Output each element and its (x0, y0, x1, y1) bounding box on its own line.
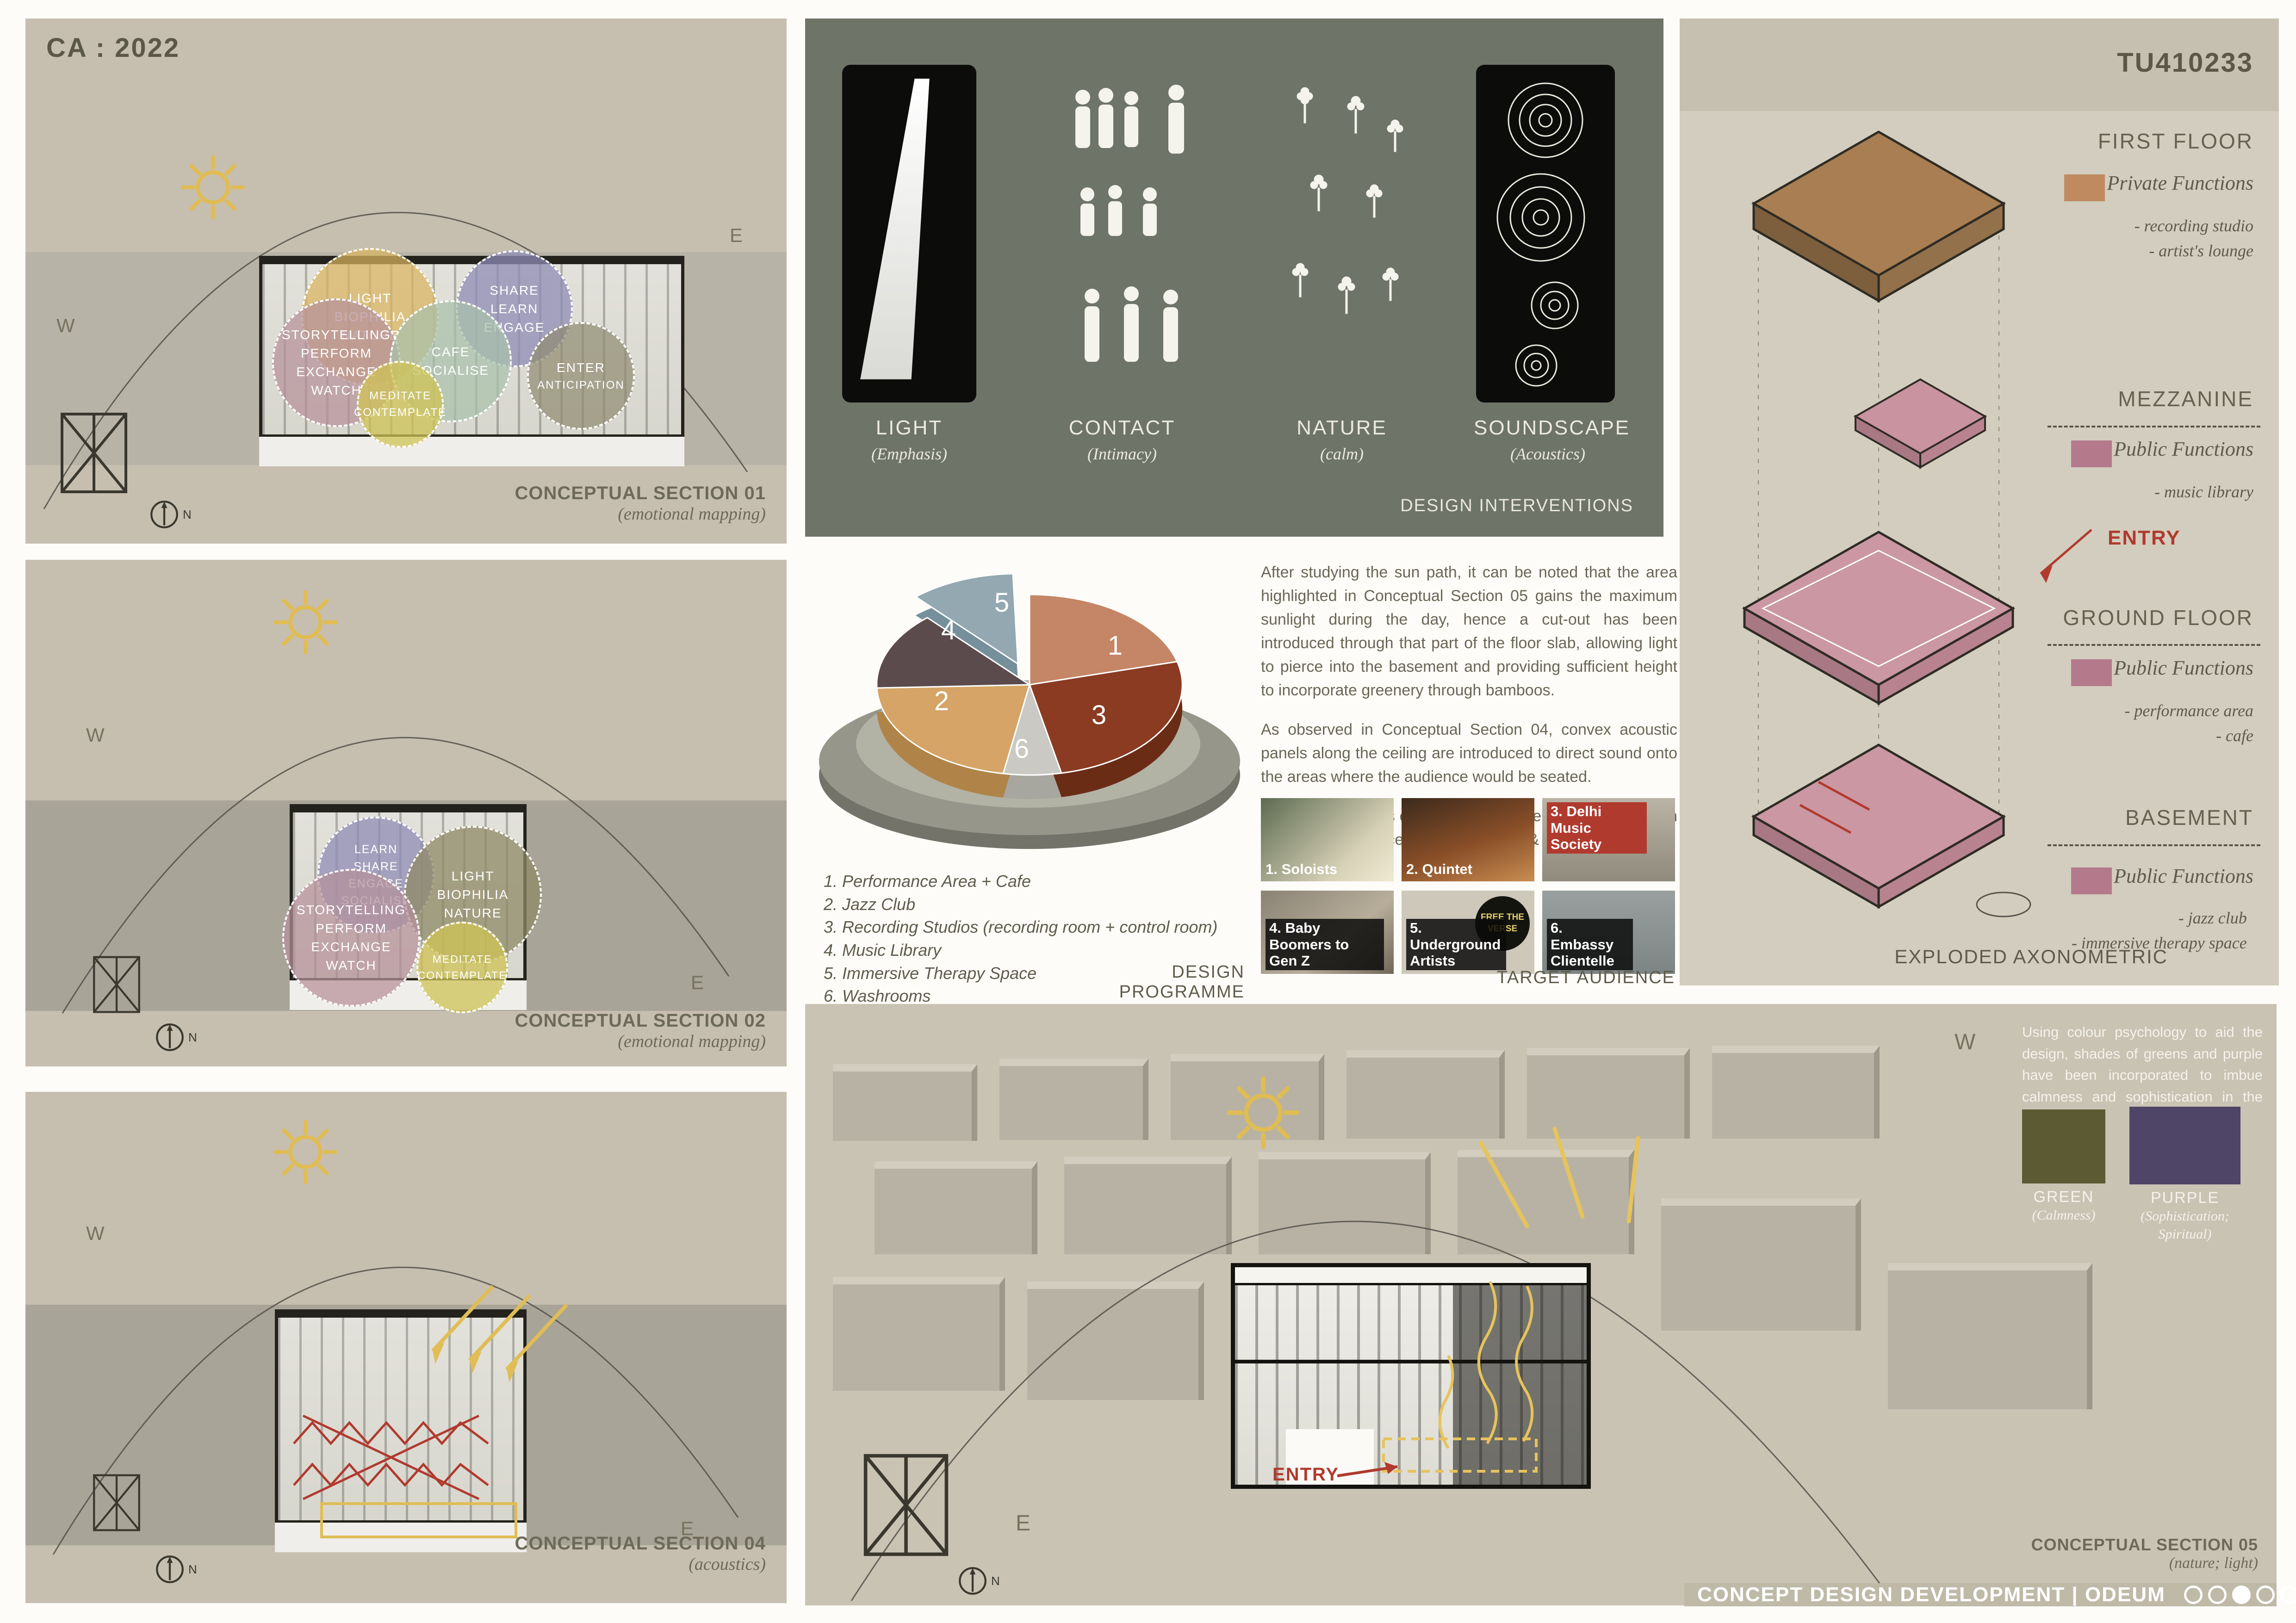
west-label: W (86, 724, 105, 746)
audience-tile-quintet: 2. Quintet (1402, 798, 1534, 881)
floor-legend: Public Functions - performance area - ca… (2071, 656, 2253, 748)
bubble-label: EXCHANGE (296, 365, 376, 379)
caption-title: CONCEPTUAL SECTION 04 (515, 1533, 766, 1554)
north-compass: N (149, 500, 192, 529)
city-block (1347, 1050, 1505, 1139)
key-plan-sketch (862, 1450, 950, 1561)
city-block (1661, 1198, 1861, 1331)
north-compass: N (958, 1566, 1000, 1596)
caption-title: CONCEPTUAL SECTION 01 (515, 483, 766, 504)
north-compass: N (155, 1022, 197, 1052)
bubble-label: LEARN (490, 302, 538, 316)
contact-illustration (1055, 79, 1208, 403)
intervention-sub: (Acoustics) (1474, 444, 1622, 464)
floor-function: Private Functions (2107, 172, 2254, 194)
audience-tile-embassy-clientelle: 6. Embassy Clientelle (1542, 891, 1675, 974)
audience-label: 2. Quintet (1406, 861, 1472, 878)
green-swatch-color (2022, 1109, 2105, 1183)
audience-caption: TARGET AUDIENCE (1490, 968, 1675, 988)
section-caption: CONCEPTUAL SECTION 02 (emotional mapping… (515, 1010, 766, 1052)
north-label: N (991, 1574, 1000, 1588)
programme-item: 2. Jazz Club (824, 893, 1263, 916)
swatch-name: PURPLE (2129, 1189, 2240, 1207)
page-dot (2208, 1586, 2227, 1604)
panel-exploded-axonometric: TU410233 (1680, 19, 2279, 985)
key-plan-sketch (92, 948, 141, 1022)
audience-label: 4. Baby Boomers to Gen Z (1266, 919, 1384, 970)
programme-item: 1. Performance Area + Cafe (824, 870, 1263, 893)
intervention-title: LIGHT (876, 416, 943, 439)
axonometric-caption: EXPLODED AXONOMETRIC (1894, 946, 2168, 968)
north-label: N (188, 1030, 197, 1045)
divider (2048, 844, 2260, 846)
sun-icon (271, 1117, 340, 1187)
floor-function: Public Functions (2114, 657, 2253, 679)
sun-icon (178, 153, 248, 222)
section-caption: CONCEPTUAL SECTION 05 (nature; light) (2031, 1535, 2258, 1572)
entry-label: ENTRY (2108, 527, 2181, 550)
pie-slice-number: 3 (1092, 700, 1106, 730)
floor-item: - jazz club (2071, 905, 2247, 930)
floor-legend: Public Functions - jazz club - immersive… (2071, 864, 2253, 955)
audience-label: 6. Embassy Clientelle (1547, 919, 1633, 970)
floor-name: GROUND FLOOR (2063, 605, 2253, 630)
divider (2048, 426, 2260, 427)
city-block (1027, 1282, 1204, 1400)
sun-icon (1224, 1073, 1303, 1152)
intervention-label: NATURE (calm) (1268, 416, 1416, 464)
intervention-title: CONTACT (1069, 416, 1175, 439)
floor-item: - recording studio (2064, 213, 2253, 238)
footer-title: CONCEPT DESIGN DEVELOPMENT | ODEUM (1697, 1583, 2166, 1606)
pie-slice-number: 5 (994, 588, 1009, 618)
floor-item: - performance area (2071, 698, 2253, 723)
bubble-label: CONTEMPLATE (354, 406, 447, 419)
key-plan-sketch (92, 1466, 141, 1540)
floor-name: MEZZANINE (2118, 386, 2253, 411)
floor-function: Public Functions (2114, 438, 2253, 460)
bubble-label: ENTER (557, 360, 605, 375)
audience-tile-delhi-music-society: 3. Delhi Music Society (1542, 798, 1675, 881)
entry-arrow (1328, 1448, 1430, 1490)
programme-item: 3. Recording Studios (recording room + c… (824, 916, 1263, 939)
section-caption: CONCEPTUAL SECTION 01 (emotional mapping… (515, 483, 766, 524)
north-compass: N (155, 1555, 197, 1584)
caption-sub: (acoustics) (515, 1554, 766, 1574)
pie-slice-number: 2 (934, 686, 949, 716)
legend-swatch (2071, 440, 2112, 467)
bubble-label: LIGHT (452, 869, 494, 884)
caption-title: CONCEPTUAL SECTION 02 (515, 1010, 766, 1031)
page-indicator (2184, 1586, 2296, 1604)
swatch-sub: (Sophistication; Spiritual) (2129, 1207, 2240, 1243)
city-block (1259, 1152, 1431, 1254)
north-label: N (183, 508, 192, 522)
bubble-label: BIOPHILIA (437, 887, 509, 902)
city-block (875, 1161, 1037, 1254)
floor-legend: Public Functions - music library (2071, 437, 2253, 504)
floor-name: BASEMENT (2125, 805, 2253, 830)
bubble-label: STORYTELLING (282, 328, 391, 342)
board-code: CA : 2022 (46, 32, 180, 63)
board-footer: CONCEPT DESIGN DEVELOPMENT | ODEUM (1684, 1583, 2277, 1606)
west-label: W (56, 315, 76, 337)
bubble-label: WATCH (311, 383, 362, 398)
audience-tile-underground-artists: FREE THE VERSE 5. Underground Artists (1402, 891, 1534, 974)
bubble-label: CONTEMPLATE (418, 969, 507, 982)
programme-item: 4. Music Library (824, 939, 1263, 962)
page-dot-active (2232, 1586, 2251, 1604)
intervention-sub: (calm) (1268, 444, 1416, 464)
bubble-label: ANTICIPATION (537, 379, 624, 392)
intervention-sub: (Intimacy) (1048, 444, 1196, 464)
city-block (1888, 1263, 2092, 1409)
caption-sub: (emotional mapping) (515, 1031, 766, 1052)
audience-tile-baby-boomers: 4. Baby Boomers to Gen Z (1261, 891, 1394, 974)
floor-function: Public Functions (2114, 865, 2253, 887)
section-caption: CONCEPTUAL SECTION 04 (acoustics) (515, 1533, 766, 1574)
floor-item: - cafe (2071, 723, 2253, 748)
bubble-label: EXCHANGE (311, 940, 391, 954)
intervention-label: LIGHT (Emphasis) (835, 416, 983, 464)
city-block (1458, 1150, 1634, 1254)
east-label: E (1016, 1511, 1031, 1536)
programme-caption: DESIGN PROGRAMME (1060, 962, 1245, 1002)
panel-conceptual-section-05: ENTRY W E Using colour psychology to aid… (805, 1004, 2277, 1605)
north-label: N (188, 1562, 197, 1577)
interventions-caption: DESIGN INTERVENTIONS (1400, 496, 1633, 516)
panel-design-interventions: LIGHT (Emphasis) CONTACT (Intimacy) NATU… (805, 19, 1663, 537)
light-illustration (842, 65, 976, 403)
audience-label: 1. Soloists (1266, 861, 1337, 878)
board-code: TU410233 (2117, 47, 2253, 78)
building-section-drawing (275, 1309, 527, 1552)
caption-title: CONCEPTUAL SECTION 05 (2031, 1535, 2258, 1555)
design-programme-pie-chart: 1 3 6 2 4 5 (810, 555, 1249, 856)
bubble-label: NATURE (444, 906, 502, 921)
presentation-board: CA : 2022 W E LIGHT BIOPHILIA NATURE SHA… (0, 0, 2296, 1623)
floor-legend: Private Functions - recording studio - a… (2064, 171, 2253, 263)
emotion-bubble-enter: ENTER ANTICIPATION (527, 322, 635, 430)
sun-icon (271, 588, 340, 657)
emotion-bubble-perform: STORYTELLING PERFORM EXCHANGE WATCH (282, 869, 420, 1007)
intervention-label: SOUNDSCAPE (Acoustics) (1474, 416, 1622, 464)
page-dot (2280, 1586, 2296, 1604)
pie-slice-number: 4 (941, 615, 956, 645)
bubble-label: LEARN (354, 843, 397, 856)
west-label: W (1955, 1029, 1976, 1055)
swatch-sub: (Calmness) (2022, 1206, 2105, 1224)
intervention-label: CONTACT (Intimacy) (1048, 416, 1196, 464)
floor-item: - artist's lounge (2064, 238, 2253, 263)
emotion-bubble-meditate: MEDITATE CONTEMPLATE (416, 922, 508, 1013)
narrative-paragraph: As observed in Conceptual Section 04, co… (1261, 718, 1677, 789)
legend-swatch (2071, 659, 2112, 686)
purple-swatch-color (2129, 1107, 2240, 1184)
city-block (1712, 1046, 1880, 1139)
key-plan-sketch (59, 411, 129, 495)
nature-illustration (1277, 74, 1421, 407)
exploded-axonometric-drawing (1680, 111, 2096, 985)
audience-tile-soloists: 1. Soloists (1261, 798, 1394, 881)
intervention-title: NATURE (1297, 416, 1387, 439)
floor-name: FIRST FLOOR (2098, 129, 2253, 154)
swatch-name: GREEN (2022, 1188, 2105, 1206)
page-dot (2184, 1586, 2203, 1604)
caption-sub: (emotional mapping) (515, 504, 766, 524)
pie-slice-number: 6 (1014, 734, 1029, 764)
city-block (833, 1064, 977, 1141)
bubble-label: CAFE (432, 345, 470, 359)
divider (2048, 644, 2260, 646)
legend-swatch (2071, 867, 2112, 894)
east-label: E (691, 972, 705, 994)
west-label: W (86, 1222, 105, 1245)
bubble-label: SHARE (490, 283, 539, 298)
bubble-label: MEDITATE (433, 953, 492, 966)
soundscape-illustration (1476, 65, 1615, 403)
audience-label: 3. Delhi Music Society (1547, 802, 1647, 854)
bubble-label: PERFORM (301, 346, 372, 361)
city-block (833, 1277, 1005, 1391)
purple-swatch: PURPLE (Sophistication; Spiritual) (2129, 1107, 2240, 1243)
legend-swatch (2064, 174, 2105, 201)
bubble-label: WATCH (326, 958, 377, 973)
pie-slice-number: 1 (1108, 631, 1123, 661)
emotion-bubble-meditate: MEDITATE CONTEMPLATE (357, 361, 444, 448)
floor-item: - music library (2071, 479, 2253, 504)
page-dot (2256, 1586, 2275, 1604)
city-block (1527, 1048, 1690, 1139)
city-block (999, 1059, 1148, 1140)
city-block (1064, 1157, 1232, 1254)
narrative-paragraph: After studying the sun path, it can be n… (1261, 561, 1677, 702)
green-swatch: GREEN (Calmness) (2022, 1109, 2105, 1224)
bubble-label: PERFORM (316, 921, 387, 936)
audience-label: 5. Underground Artists (1406, 919, 1506, 970)
east-label: E (730, 224, 744, 247)
caption-sub: (nature; light) (2031, 1555, 2258, 1572)
intervention-title: SOUNDSCAPE (1474, 416, 1630, 439)
target-audience-grid: 1. Soloists 2. Quintet 3. Delhi Music So… (1261, 798, 1675, 974)
intervention-sub: (Emphasis) (835, 444, 983, 464)
panel-conceptual-section-04: W E N CONCEPTUAL SECTION 04 (acoustics) (25, 1092, 787, 1603)
panel-conceptual-section-02: W E LEARN SHARE ENGAGE SOCIALISE LIGHT B… (25, 560, 787, 1066)
bubble-label: STORYTELLING (297, 903, 406, 917)
bubble-label: MEDITATE (369, 390, 431, 403)
panel-conceptual-section-01: CA : 2022 W E LIGHT BIOPHILIA NATURE SHA… (25, 19, 787, 544)
